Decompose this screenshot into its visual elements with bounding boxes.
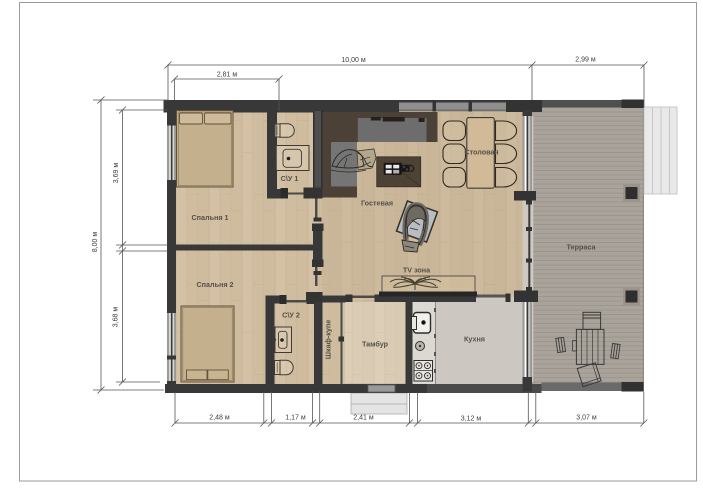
svg-text:Шкаф-купе: Шкаф-купе (324, 320, 333, 359)
svg-text:Терраса: Терраса (567, 243, 597, 252)
svg-text:10,00 м: 10,00 м (341, 57, 365, 64)
svg-text:8,00 м: 8,00 м (92, 232, 99, 253)
svg-text:3,07 м: 3,07 м (576, 415, 597, 422)
svg-text:С\У 2: С\У 2 (282, 311, 300, 320)
svg-text:2,48 м: 2,48 м (209, 415, 230, 422)
svg-text:3,69 м: 3,69 м (113, 163, 120, 184)
svg-text:Гостевая: Гостевая (361, 199, 393, 208)
svg-text:3,68 м: 3,68 м (113, 307, 120, 328)
svg-text:2,99 м: 2,99 м (575, 57, 596, 64)
svg-text:Спальня 2: Спальня 2 (196, 280, 233, 289)
svg-text:С\У 1: С\У 1 (281, 174, 299, 183)
svg-text:Столовая: Столовая (464, 148, 498, 157)
svg-text:3,12 м: 3,12 м (461, 416, 482, 423)
svg-text:1,17 м: 1,17 м (285, 415, 306, 422)
svg-text:2,81 м: 2,81 м (217, 72, 238, 79)
svg-text:TV зона: TV зона (403, 266, 431, 275)
svg-text:2,41 м: 2,41 м (353, 415, 374, 422)
svg-text:Тамбур: Тамбур (362, 340, 389, 349)
svg-text:Спальня 1: Спальня 1 (191, 213, 228, 222)
svg-text:Кухня: Кухня (464, 335, 485, 344)
